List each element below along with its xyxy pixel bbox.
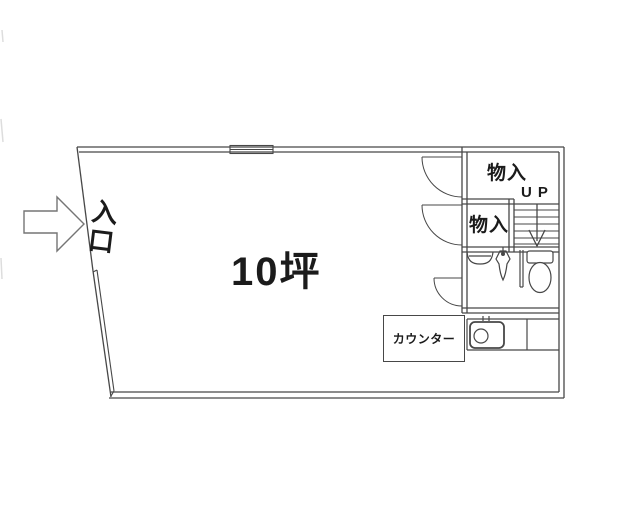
- floor-plan: 10坪 入口 物入 物入 UP カウンター: [0, 0, 621, 522]
- left-wall-lower: [93, 271, 111, 397]
- stairs-up-label: UP: [521, 185, 554, 200]
- doors: [422, 157, 462, 306]
- counter-label: カウンター: [393, 330, 456, 347]
- door-swing-arc-upper: [422, 157, 462, 197]
- door-swing-arc-middle: [422, 205, 462, 245]
- storage-lower-label: 物入: [469, 216, 509, 235]
- counter-label-box: カウンター: [383, 315, 465, 362]
- door-swing-arc-toilet: [434, 278, 462, 306]
- stairs: [514, 204, 559, 246]
- area-label: 10坪: [231, 252, 322, 292]
- entrance-arrow-icon: [24, 197, 84, 251]
- toilet-partition: [520, 250, 523, 287]
- kitchen-counter: [467, 316, 559, 350]
- entrance-label: 入口: [85, 197, 118, 258]
- sink-icon: [470, 316, 504, 348]
- hand-basin-icon: [467, 252, 493, 264]
- storage-upper-label: 物入: [487, 164, 527, 183]
- scan-artifacts: [1, 30, 3, 279]
- toilet-room: [467, 247, 553, 293]
- toilet-icon: [527, 251, 553, 293]
